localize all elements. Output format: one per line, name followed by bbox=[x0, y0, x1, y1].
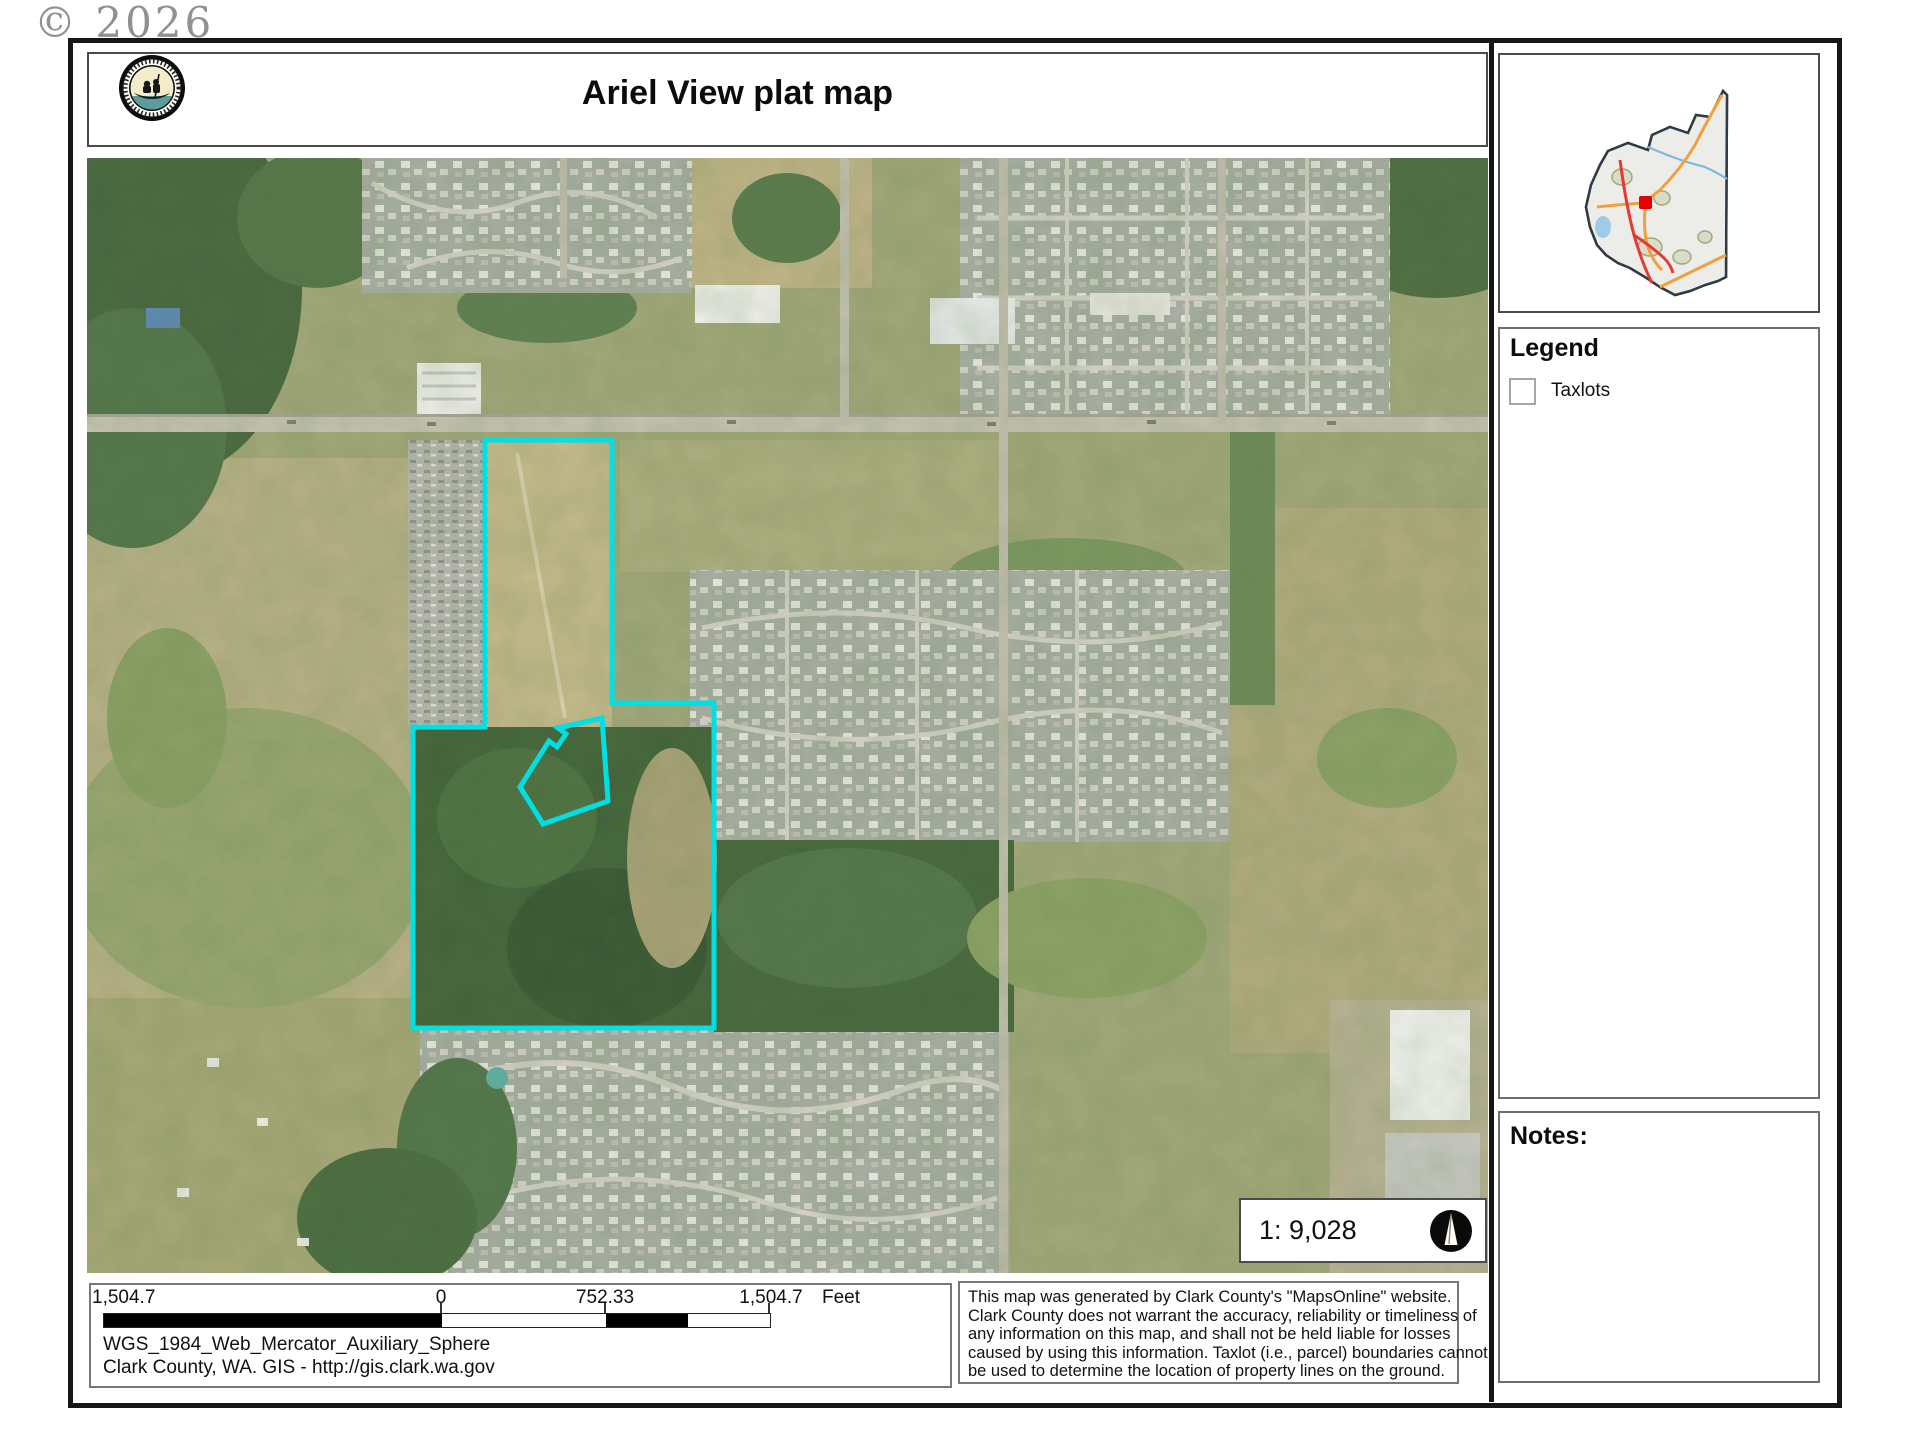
source-text: Clark County, WA. GIS - http://gis.clark… bbox=[103, 1357, 495, 1379]
disclaimer-line: This map was generated by Clark County's… bbox=[968, 1288, 1449, 1307]
scalebar-segment bbox=[442, 1314, 606, 1327]
page-title: Ariel View plat map bbox=[87, 74, 1488, 113]
disclaimer-line: caused by using this information. Taxlot… bbox=[968, 1344, 1449, 1363]
scalebar-label-right: 1,504.7 bbox=[739, 1287, 802, 1309]
north-arrow-icon bbox=[1429, 1209, 1473, 1253]
legend-item-taxlots: Taxlots bbox=[1551, 380, 1610, 402]
scalebar bbox=[103, 1313, 771, 1328]
disclaimer-line: Clark County does not warrant the accura… bbox=[968, 1307, 1449, 1326]
panel-divider bbox=[1489, 38, 1494, 1402]
scalebar-segment bbox=[606, 1314, 688, 1327]
disclaimer-box: This map was generated by Clark County's… bbox=[958, 1281, 1459, 1384]
scalebar-tick bbox=[440, 1303, 442, 1313]
scale-ratio: 1: 9,028 bbox=[1259, 1215, 1357, 1246]
aerial-map bbox=[87, 158, 1488, 1273]
notes-box bbox=[1498, 1111, 1820, 1383]
scale-ratio-box: 1: 9,028 bbox=[1239, 1198, 1487, 1263]
location-marker bbox=[1639, 196, 1652, 209]
taxlots-swatch-icon bbox=[1509, 378, 1536, 405]
scalebar-tick bbox=[768, 1303, 770, 1313]
projection-text: WGS_1984_Web_Mercator_Auxiliary_Sphere bbox=[103, 1334, 490, 1356]
scalebar-label-left: 1,504.7 bbox=[92, 1287, 155, 1309]
scalebar-tick bbox=[604, 1303, 606, 1313]
scalebar-segment bbox=[688, 1314, 770, 1327]
legend-box bbox=[1498, 327, 1820, 1099]
scalebar-unit: Feet bbox=[822, 1287, 860, 1309]
disclaimer-line: any information on this map, and shall n… bbox=[968, 1325, 1449, 1344]
notes-title: Notes: bbox=[1510, 1122, 1588, 1151]
lake bbox=[1595, 216, 1611, 238]
disclaimer-line: be used to determine the location of pro… bbox=[968, 1362, 1449, 1381]
scalebar-segment bbox=[104, 1314, 442, 1327]
county-locator-map bbox=[1498, 53, 1820, 313]
legend-title: Legend bbox=[1510, 334, 1599, 363]
